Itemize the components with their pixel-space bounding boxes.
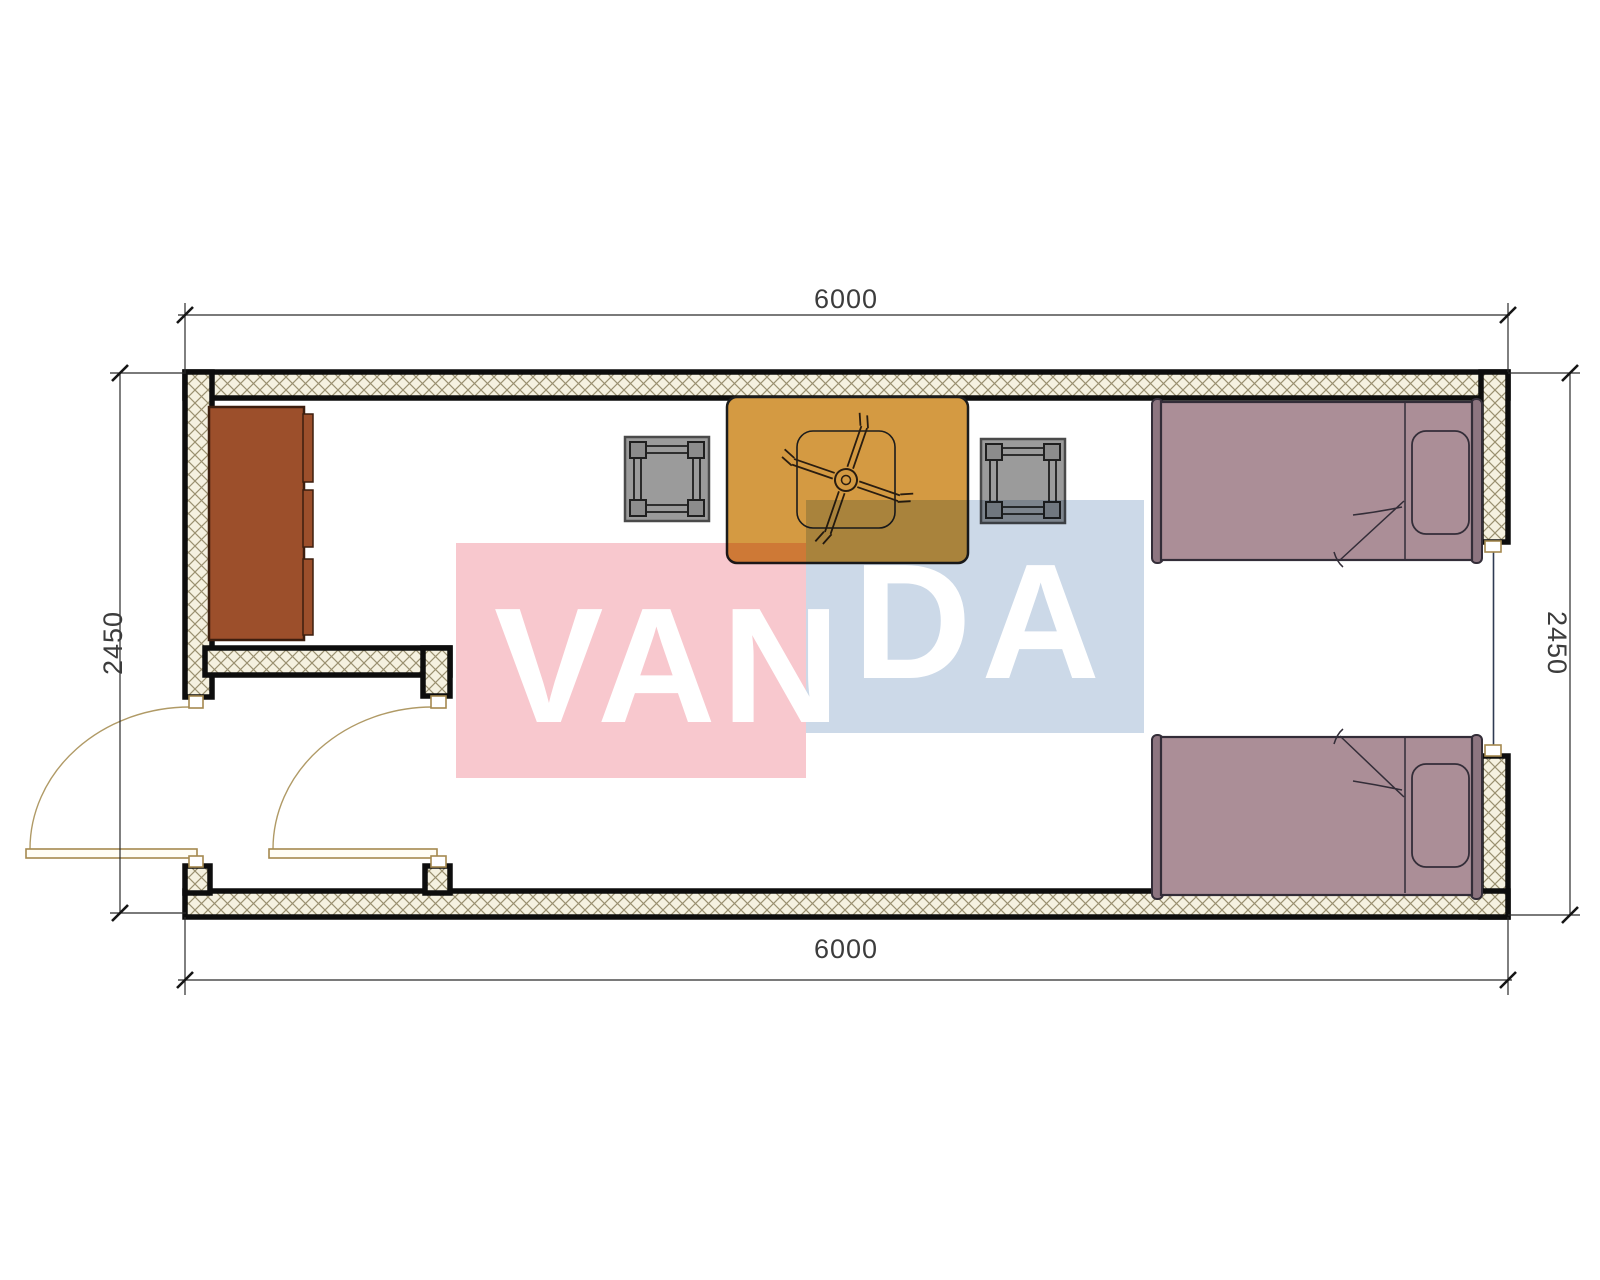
door-frame-block (431, 856, 446, 867)
door-frames (189, 696, 446, 867)
wall-partition (205, 648, 450, 675)
interior-door (269, 707, 437, 858)
watermark-text-da: DA (853, 530, 1110, 713)
stool-left (625, 437, 709, 521)
floor-plan-drawing: 6000 6000 2450 2450 VAN DA (0, 0, 1600, 1280)
wardrobe-drawer-top (303, 414, 313, 482)
bed-bottom (1152, 729, 1482, 899)
dimension-left-label: 2450 (98, 611, 128, 675)
bed-pillow (1412, 764, 1469, 867)
door-frame-block (189, 696, 203, 708)
door-swing-arc (273, 707, 432, 849)
bed-top (1152, 399, 1482, 567)
floor-plan-canvas: 6000 6000 2450 2450 VAN DA (0, 0, 1600, 1280)
door-frame-block (189, 856, 203, 867)
door-swing-arc (30, 707, 190, 849)
wardrobe (209, 407, 313, 640)
wall-pier-exterior-door (185, 866, 210, 893)
watermark-text-van: VAN (494, 574, 846, 757)
wardrobe-drawer-bottom (303, 559, 313, 635)
exterior-door (26, 707, 197, 858)
wall-top (185, 372, 1508, 398)
window-frame-block (1485, 541, 1501, 552)
wardrobe-body (209, 407, 304, 640)
window-frame-block (1485, 745, 1501, 756)
dimension-bottom-label: 6000 (814, 934, 878, 964)
door-frame-block (431, 696, 446, 708)
window-right-wall (1485, 541, 1501, 756)
dimension-top-label: 6000 (814, 284, 878, 314)
door-leaf (26, 849, 197, 858)
wall-right-upper (1481, 372, 1508, 542)
wall-pier-interior-door (425, 866, 450, 893)
door-leaf (269, 849, 437, 858)
wardrobe-drawer-middle (303, 490, 313, 547)
wall-partition-jamb (423, 648, 450, 696)
bed-pillow (1412, 431, 1469, 534)
dimension-right-label: 2450 (1542, 611, 1572, 675)
